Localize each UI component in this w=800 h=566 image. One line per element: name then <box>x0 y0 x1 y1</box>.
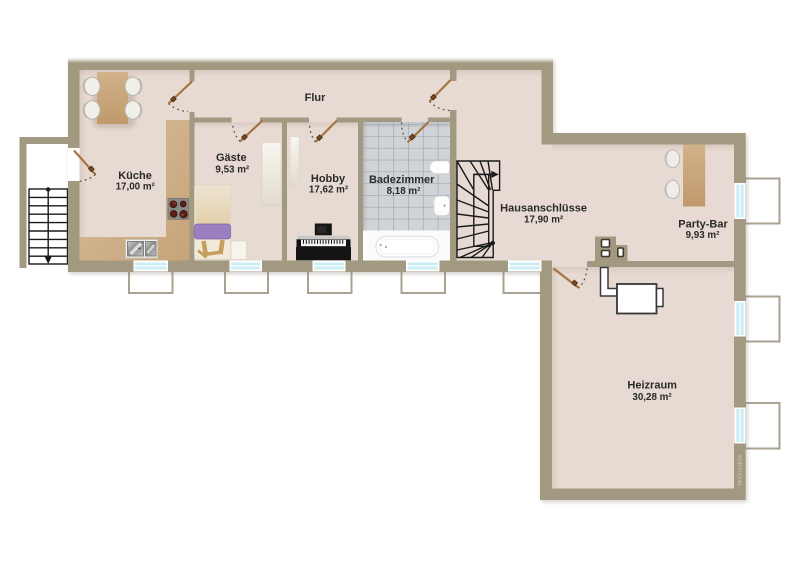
svg-text:Gäste: Gäste <box>216 152 247 164</box>
svg-text:17,90 m²: 17,90 m² <box>524 215 564 226</box>
svg-text:Hobby: Hobby <box>311 173 346 185</box>
svg-text:McGrundriss: McGrundriss <box>738 454 744 485</box>
svg-text:Badezimmer: Badezimmer <box>369 174 435 186</box>
svg-text:9,93 m²: 9,93 m² <box>686 230 721 241</box>
svg-text:Party-Bar: Party-Bar <box>678 219 728 231</box>
svg-text:17,00 m²: 17,00 m² <box>116 182 156 193</box>
svg-text:Heizraum: Heizraum <box>627 380 677 392</box>
svg-text:17,62 m²: 17,62 m² <box>309 184 349 195</box>
svg-text:8,18 m²: 8,18 m² <box>387 186 422 197</box>
svg-text:30,28 m²: 30,28 m² <box>632 392 672 403</box>
svg-text:Hausanschlüsse: Hausanschlüsse <box>500 202 587 214</box>
svg-text:Flur: Flur <box>305 92 326 104</box>
svg-text:9,53 m²: 9,53 m² <box>215 164 250 175</box>
svg-text:Küche: Küche <box>118 170 152 182</box>
